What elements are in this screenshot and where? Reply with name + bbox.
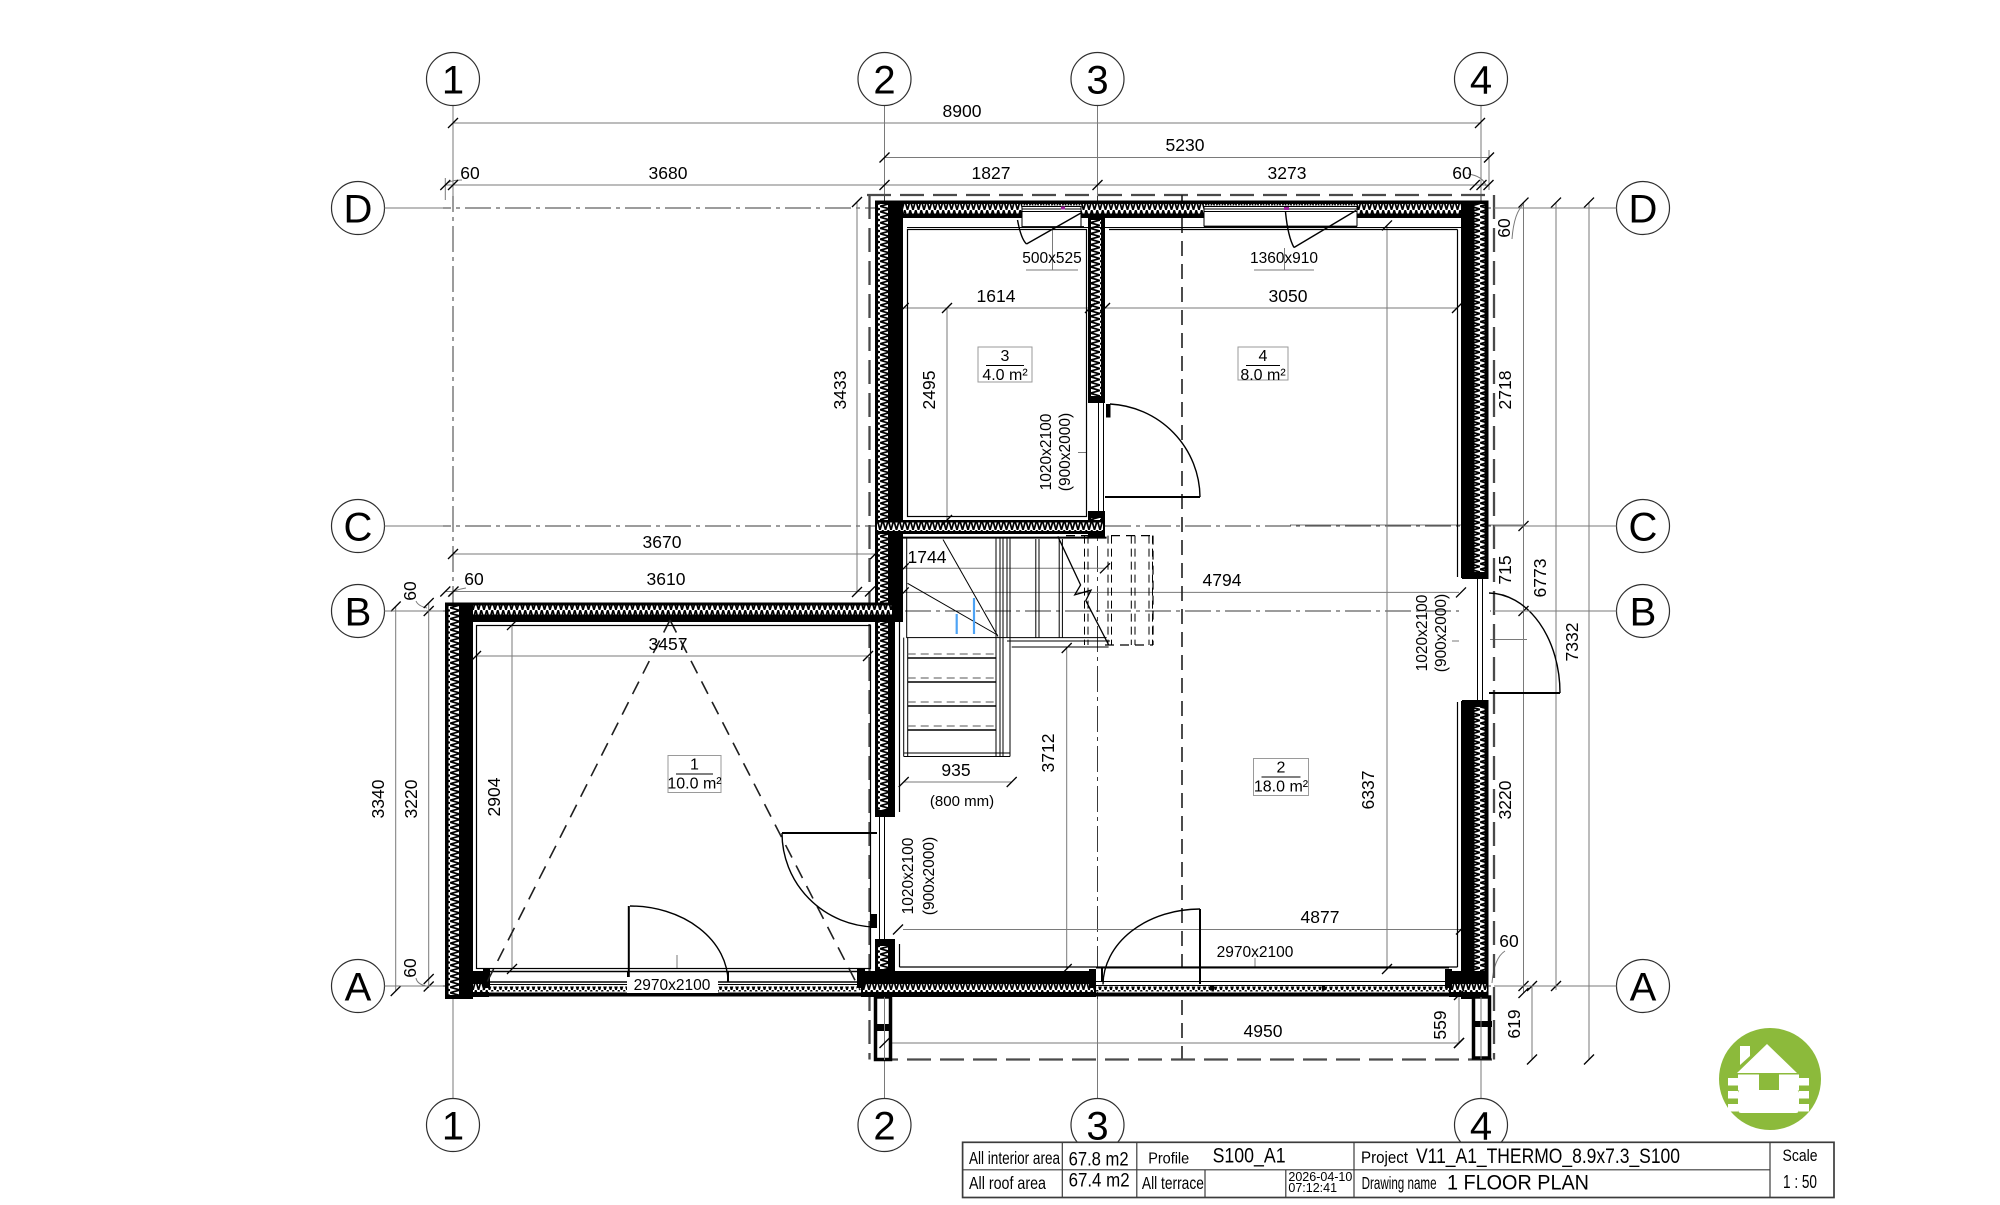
- svg-text:1020x2100: 1020x2100: [1038, 413, 1055, 490]
- svg-text:(800 mm): (800 mm): [930, 793, 994, 810]
- svg-text:559: 559: [1430, 1010, 1450, 1039]
- svg-text:C: C: [344, 506, 373, 550]
- svg-text:2: 2: [873, 1105, 895, 1149]
- svg-text:3680: 3680: [649, 163, 688, 183]
- svg-text:3: 3: [1086, 59, 1108, 103]
- svg-text:2970x2100: 2970x2100: [634, 977, 711, 994]
- svg-text:2495: 2495: [919, 371, 939, 410]
- svg-text:715: 715: [1495, 555, 1515, 584]
- svg-text:1827: 1827: [972, 163, 1011, 183]
- svg-text:4794: 4794: [1203, 570, 1242, 590]
- svg-text:1020x2100: 1020x2100: [900, 837, 917, 914]
- svg-text:18.0 m²: 18.0 m²: [1254, 779, 1309, 796]
- svg-text:4: 4: [1259, 348, 1268, 365]
- svg-text:D: D: [344, 188, 373, 232]
- svg-text:Profile: Profile: [1148, 1151, 1189, 1168]
- svg-text:1020x2100: 1020x2100: [1414, 594, 1431, 671]
- svg-text:935: 935: [941, 760, 970, 780]
- svg-text:8900: 8900: [943, 101, 982, 121]
- svg-text:B: B: [1630, 591, 1657, 635]
- svg-text:1614: 1614: [977, 286, 1016, 306]
- svg-text:3220: 3220: [1495, 780, 1515, 819]
- svg-text:3: 3: [1001, 348, 1010, 365]
- svg-text:6337: 6337: [1358, 771, 1378, 810]
- svg-text:All terrace: All terrace: [1142, 1173, 1204, 1193]
- svg-text:Drawing name: Drawing name: [1362, 1173, 1437, 1193]
- svg-text:2718: 2718: [1495, 371, 1515, 410]
- svg-text:60: 60: [460, 163, 480, 183]
- svg-text:4950: 4950: [1244, 1021, 1283, 1041]
- svg-text:A: A: [1630, 966, 1657, 1010]
- svg-text:60: 60: [400, 581, 420, 601]
- svg-text:A: A: [345, 966, 372, 1010]
- svg-text:60: 60: [1494, 218, 1514, 238]
- svg-text:2904: 2904: [484, 777, 504, 816]
- svg-text:619: 619: [1504, 1009, 1524, 1038]
- svg-text:2: 2: [873, 59, 895, 103]
- svg-text:4.0 m²: 4.0 m²: [982, 367, 1028, 384]
- svg-text:(900x2000): (900x2000): [921, 837, 938, 915]
- svg-text:2970x2100: 2970x2100: [1217, 944, 1294, 961]
- svg-text:60: 60: [1452, 163, 1472, 183]
- svg-text:67.4 m2: 67.4 m2: [1069, 1171, 1130, 1192]
- svg-text:2: 2: [1277, 760, 1286, 777]
- svg-text:5230: 5230: [1166, 135, 1205, 155]
- svg-text:All interior area: All interior area: [969, 1148, 1060, 1168]
- svg-text:1360x910: 1360x910: [1250, 250, 1318, 267]
- svg-text:C: C: [1629, 506, 1658, 550]
- svg-text:60: 60: [464, 569, 484, 589]
- svg-text:All roof area: All roof area: [969, 1173, 1046, 1193]
- svg-text:3712: 3712: [1038, 734, 1058, 773]
- svg-text:3670: 3670: [643, 532, 682, 552]
- svg-text:500x525: 500x525: [1022, 250, 1081, 267]
- svg-text:4: 4: [1470, 59, 1492, 103]
- svg-text:1: 1: [690, 757, 699, 774]
- svg-text:1744: 1744: [908, 547, 947, 567]
- svg-text:V11_A1_THERMO_8.9x7.3_S100: V11_A1_THERMO_8.9x7.3_S100: [1416, 1145, 1680, 1168]
- svg-text:3220: 3220: [401, 779, 421, 818]
- svg-text:3610: 3610: [647, 569, 686, 589]
- svg-text:4877: 4877: [1301, 907, 1340, 927]
- svg-text:1: 1: [442, 1105, 464, 1149]
- svg-text:60: 60: [1499, 931, 1519, 951]
- svg-text:3433: 3433: [830, 371, 850, 410]
- svg-text:S100_A1: S100_A1: [1213, 1145, 1286, 1168]
- svg-text:3273: 3273: [1268, 163, 1307, 183]
- svg-text:1: 1: [442, 59, 464, 103]
- svg-text:(900x2000): (900x2000): [1433, 594, 1450, 672]
- svg-text:3340: 3340: [368, 779, 388, 818]
- svg-text:67.8 m2: 67.8 m2: [1069, 1149, 1129, 1170]
- svg-text:6773: 6773: [1530, 559, 1550, 598]
- svg-text:3457: 3457: [649, 634, 688, 654]
- svg-text:D: D: [1629, 188, 1658, 232]
- svg-text:Scale: Scale: [1783, 1146, 1818, 1165]
- svg-text:B: B: [345, 591, 372, 635]
- svg-text:1 : 50: 1 : 50: [1783, 1172, 1817, 1192]
- svg-text:(900x2000): (900x2000): [1057, 413, 1074, 491]
- svg-text:07:12:41: 07:12:41: [1288, 1181, 1337, 1195]
- svg-text:1 FLOOR PLAN: 1 FLOOR PLAN: [1447, 1171, 1589, 1194]
- svg-text:7332: 7332: [1562, 623, 1582, 662]
- svg-text:3050: 3050: [1269, 286, 1308, 306]
- svg-text:10.0 m²: 10.0 m²: [667, 776, 722, 793]
- svg-text:60: 60: [400, 958, 420, 978]
- svg-text:8.0 m²: 8.0 m²: [1240, 367, 1286, 384]
- svg-text:Project: Project: [1361, 1149, 1408, 1167]
